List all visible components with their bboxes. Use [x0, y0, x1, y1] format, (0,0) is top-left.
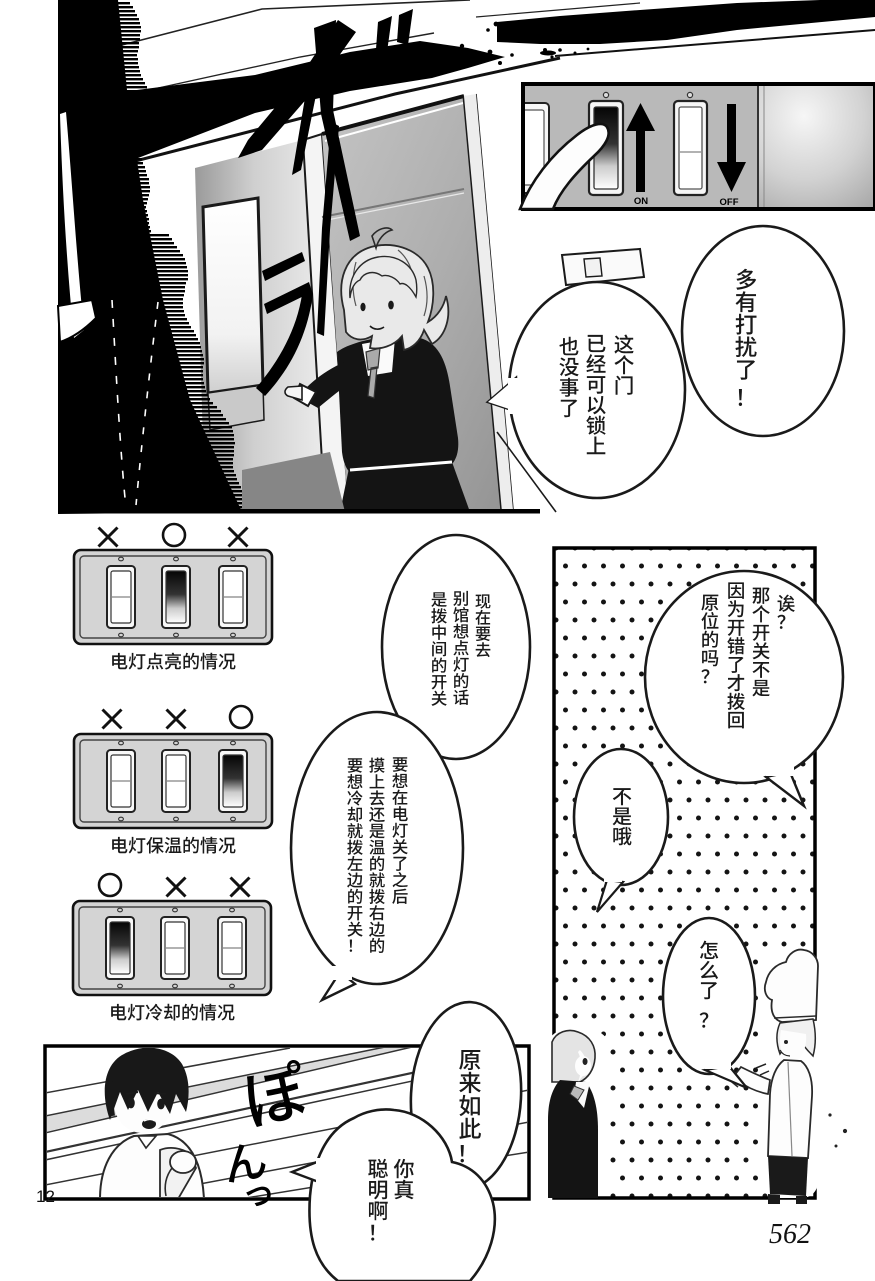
- svg-text:ON: ON: [634, 196, 648, 207]
- svg-text:12: 12: [36, 1187, 55, 1206]
- svg-text:562: 562: [769, 1219, 811, 1250]
- svg-text:OFF: OFF: [720, 197, 739, 208]
